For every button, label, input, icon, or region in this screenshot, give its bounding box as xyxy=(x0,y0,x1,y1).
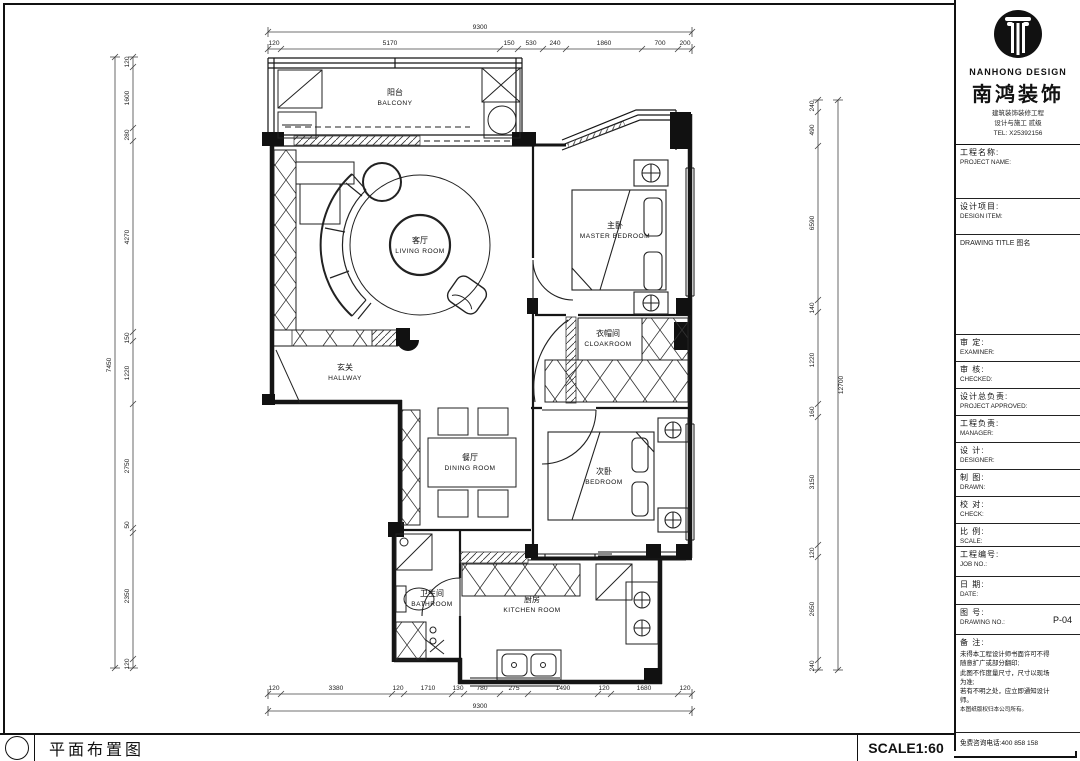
svg-text:530: 530 xyxy=(525,40,536,47)
room-label-living: 客厅 xyxy=(412,235,428,245)
svg-text:5170: 5170 xyxy=(383,40,398,47)
remark-line: 为准; xyxy=(960,678,1076,687)
svg-text:150: 150 xyxy=(503,40,514,47)
drawing-symbol-icon xyxy=(5,736,29,760)
room-label-balcony: 阳台 xyxy=(387,87,403,97)
tb-row-manager: 工程负责: MANAGER: xyxy=(956,416,1080,443)
svg-text:120: 120 xyxy=(268,685,279,692)
brand-name-cn: 南鸿装饰 xyxy=(956,78,1080,107)
room-label-bathroom: 卫生间 xyxy=(420,588,444,598)
tb-row-remarks: 备 注: 未得本工程设计师书面许可不得 随意扩广或部分翻印; 此图不作度量尺寸，… xyxy=(956,635,1080,732)
room-label-cloakroom: 衣帽间 xyxy=(596,328,620,338)
svg-text:1220: 1220 xyxy=(809,352,816,367)
svg-text:275: 275 xyxy=(508,685,519,692)
cad-sheet: 阳台 BALCONY 客厅 LIVING ROOM 主卧 MASTER BEDR… xyxy=(0,0,1080,761)
svg-text:2650: 2650 xyxy=(809,601,816,616)
floor-plan-drawing: 阳台 BALCONY 客厅 LIVING ROOM 主卧 MASTER BEDR… xyxy=(0,0,948,724)
tb-row-designer: 设 计: DESIGNER: xyxy=(956,443,1080,470)
svg-text:120: 120 xyxy=(679,685,690,692)
svg-text:50: 50 xyxy=(124,521,131,529)
svg-text:240: 240 xyxy=(809,100,816,111)
svg-text:HALLWAY: HALLWAY xyxy=(328,375,362,382)
svg-text:700: 700 xyxy=(654,40,665,47)
svg-text:780: 780 xyxy=(476,685,487,692)
room-label-bedroom: 次卧 xyxy=(596,466,612,476)
svg-text:1600: 1600 xyxy=(124,90,131,105)
svg-text:BEDROOM: BEDROOM xyxy=(585,479,623,486)
svg-text:KITCHEN ROOM: KITCHEN ROOM xyxy=(503,607,560,614)
title-block: NANHONG DESIGN 南鸿装饰 建筑装饰装修工程 设计与施工 贰级 TE… xyxy=(954,0,1080,751)
tb-row-drawing-no: 图 号: DRAWING NO.: P-04 xyxy=(956,605,1080,635)
svg-text:120: 120 xyxy=(124,56,131,67)
room-label-dining: 餐厅 xyxy=(462,453,478,462)
tb-row-project-approved: 设计总负责: PROJECT APPROVED: xyxy=(956,389,1080,416)
bedroom-furniture xyxy=(548,418,688,532)
tb-row-drawn: 制 图: DRAWN: xyxy=(956,470,1080,497)
svg-text:120: 120 xyxy=(392,685,403,692)
sheet-scale: SCALE1:60 xyxy=(857,735,954,761)
remark-line: 随意扩广或部分翻印; xyxy=(960,659,1076,668)
svg-text:4270: 4270 xyxy=(124,229,131,244)
svg-text:LIVING ROOM: LIVING ROOM xyxy=(395,248,444,255)
svg-text:120: 120 xyxy=(124,658,131,669)
tb-row-date: 日 期: DATE: xyxy=(956,577,1080,605)
svg-text:6590: 6590 xyxy=(809,215,816,230)
tb-row-job-no: 工程编号: JOB NO.: xyxy=(956,547,1080,577)
room-labels: 阳台 BALCONY 客厅 LIVING ROOM 主卧 MASTER BEDR… xyxy=(328,87,650,614)
svg-text:2750: 2750 xyxy=(124,458,131,473)
brand-tel: TEL: X25392156 xyxy=(994,130,1043,137)
svg-text:200: 200 xyxy=(679,40,690,47)
svg-text:1490: 1490 xyxy=(556,685,571,692)
dimension-lines xyxy=(110,27,843,716)
svg-text:7450: 7450 xyxy=(106,357,113,372)
brand-subline-2: 设计与施工 贰级 xyxy=(994,120,1041,127)
svg-text:1220: 1220 xyxy=(124,365,131,380)
svg-text:BALCONY: BALCONY xyxy=(377,100,412,107)
svg-text:130: 130 xyxy=(452,685,463,692)
svg-text:140: 140 xyxy=(809,302,816,313)
kitchen-fixtures xyxy=(462,564,658,680)
room-label-kitchen: 厨房 xyxy=(524,594,540,604)
svg-text:2350: 2350 xyxy=(124,588,131,603)
svg-text:1860: 1860 xyxy=(597,40,612,47)
sheet-title: 平面布置图 xyxy=(35,735,144,761)
nanhong-column-logo-icon xyxy=(992,8,1044,60)
svg-text:150: 150 xyxy=(124,332,131,343)
brand-logo-block: NANHONG DESIGN 南鸿装饰 建筑装饰装修工程 设计与施工 贰级 TE… xyxy=(956,0,1080,145)
drawing-title-bar: 平面布置图 SCALE1:60 xyxy=(0,733,954,761)
svg-text:9300: 9300 xyxy=(473,703,488,710)
tb-row-examiner: 审 定: EXAMINER: xyxy=(956,335,1080,362)
tb-row-scale: 比 例: SCALE: xyxy=(956,524,1080,547)
svg-text:160: 160 xyxy=(809,406,816,417)
tb-row-drawing-title: DRAWING TITLE 图名 xyxy=(956,235,1080,335)
floor-plan-area: 阳台 BALCONY 客厅 LIVING ROOM 主卧 MASTER BEDR… xyxy=(0,0,948,724)
svg-text:240: 240 xyxy=(809,660,816,671)
living-room-furniture xyxy=(321,163,490,319)
room-label-hallway: 玄关 xyxy=(337,362,353,372)
room-label-master: 主卧 xyxy=(607,220,623,230)
brand-name-en: NANHONG DESIGN xyxy=(956,67,1080,77)
drawing-symbol-cell xyxy=(0,735,35,761)
tb-row-design-item: 设计项目: DESIGN ITEM: xyxy=(956,199,1080,235)
svg-text:12700: 12700 xyxy=(838,376,845,395)
remark-line: 若有不明之处，应立即通知设计 xyxy=(960,687,1076,696)
remark-line: 未得本工程设计师书面许可不得 xyxy=(960,650,1076,659)
remark-line: 此图不作度量尺寸，尺寸以现场 xyxy=(960,669,1076,678)
drawing-number-value: P-04 xyxy=(1053,615,1072,625)
svg-text:DINING ROOM: DINING ROOM xyxy=(445,465,496,472)
svg-text:280: 280 xyxy=(124,129,131,140)
brand-subline-1: 建筑装饰装修工程 xyxy=(992,110,1044,117)
tb-row-project-name: 工程名称: PROJECT NAME: xyxy=(956,145,1080,199)
svg-text:120: 120 xyxy=(809,547,816,558)
svg-text:3380: 3380 xyxy=(329,685,344,692)
svg-text:BATHROOM: BATHROOM xyxy=(411,601,453,608)
svg-text:1710: 1710 xyxy=(421,685,436,692)
svg-text:3150: 3150 xyxy=(809,474,816,489)
hotline: 免费咨询电话:400 858 158 xyxy=(956,732,1080,751)
tb-row-check: 校 对: CHECK: xyxy=(956,497,1080,524)
svg-text:1680: 1680 xyxy=(637,685,652,692)
dimension-labels: 9300 120 5170 150 530 240 1860 700 200 9… xyxy=(106,24,845,710)
remark-line: 本图纸版权归本公司所有。 xyxy=(960,706,1076,714)
tb-row-checked: 审 核: CHECKED: xyxy=(956,362,1080,389)
svg-text:120: 120 xyxy=(268,40,279,47)
remark-line: 师。 xyxy=(960,696,1076,705)
svg-text:MASTER BEDROOM: MASTER BEDROOM xyxy=(580,233,650,240)
svg-text:490: 490 xyxy=(809,124,816,135)
svg-text:9300: 9300 xyxy=(473,24,488,31)
svg-text:CLOAKROOM: CLOAKROOM xyxy=(584,341,631,348)
svg-text:120: 120 xyxy=(598,685,609,692)
svg-text:240: 240 xyxy=(549,40,560,47)
